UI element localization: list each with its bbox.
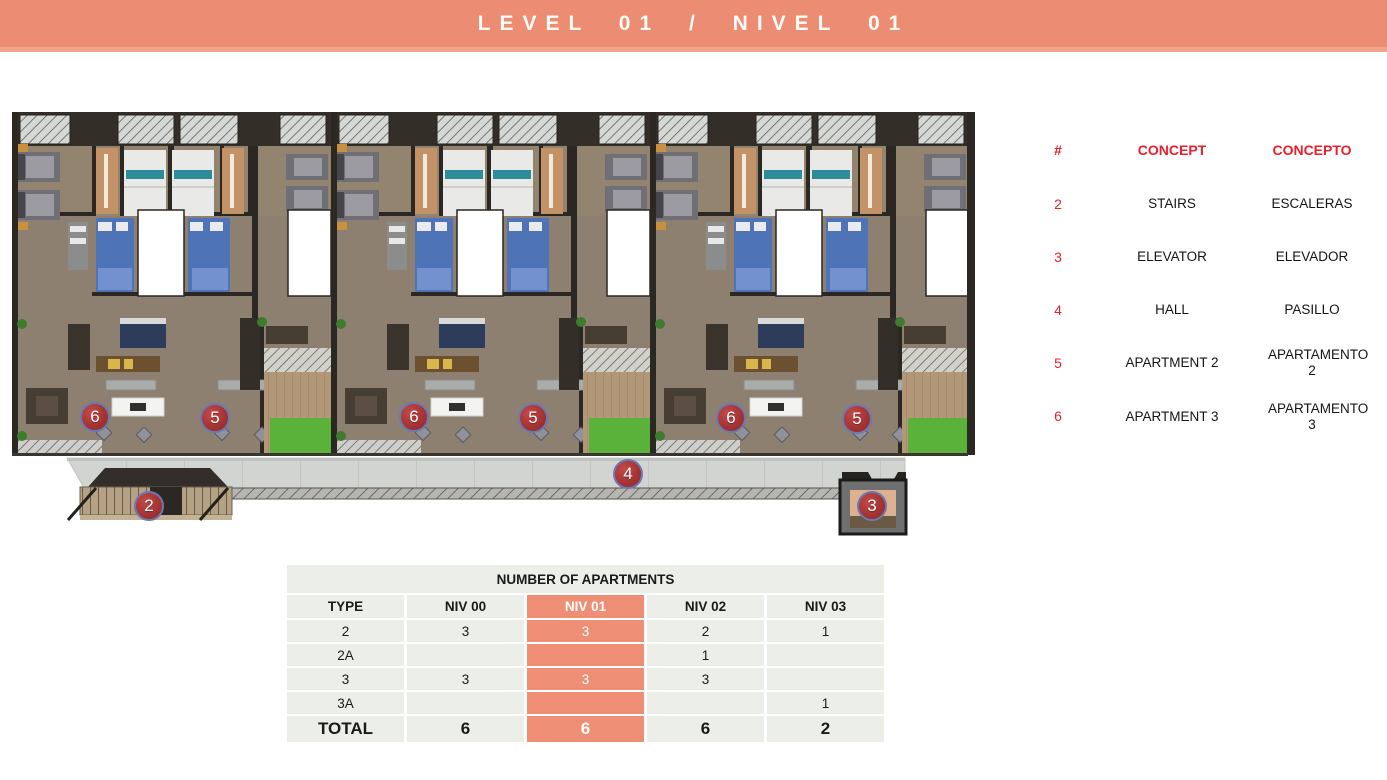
plan-marker-apartment2: 5 (200, 403, 230, 433)
cell-total-niv02: 6 (647, 716, 764, 742)
cell-niv02: 1 (647, 644, 764, 666)
cell-total-label: TOTAL (287, 716, 404, 742)
cell-total-niv01: 6 (527, 716, 644, 742)
cell-niv03 (767, 668, 884, 690)
legend-row-num: 6 (1040, 408, 1076, 425)
apartment-modules (12, 112, 969, 455)
cell-niv02 (647, 692, 764, 714)
plan-marker-apartment3: 6 (80, 402, 110, 432)
legend-row-concepto: ESCALERAS (1268, 196, 1356, 212)
plan-marker-apartment3: 6 (716, 403, 746, 433)
plan-marker-apartment2: 5 (518, 403, 548, 433)
legend-header-concepto: CONCEPTO (1268, 142, 1356, 159)
legend-header-concept: CONCEPT (1076, 142, 1268, 159)
cell-type: 2 (287, 620, 404, 642)
plan-marker-stairs: 2 (134, 491, 164, 521)
legend-row-num: 2 (1040, 196, 1076, 213)
legend-row-concept: HALL (1076, 302, 1268, 318)
page-title: LEVEL 01 / NIVEL 01 (478, 12, 910, 36)
cell-niv00 (407, 644, 524, 666)
cell-niv01: 3 (527, 668, 644, 690)
apartments-table-header-row: TYPE NIV 00 NIV 01 NIV 02 NIV 03 (287, 595, 884, 618)
cell-niv03: 1 (767, 692, 884, 714)
header-bar: LEVEL 01 / NIVEL 01 (0, 0, 1387, 52)
floor-plan: 6 5 6 5 6 5 4 2 3 (10, 110, 978, 538)
table-total-row: TOTAL 6 6 6 2 (287, 716, 884, 742)
cell-niv02: 3 (647, 668, 764, 690)
cell-total-niv00: 6 (407, 716, 524, 742)
cell-niv01: 3 (527, 620, 644, 642)
cell-niv01 (527, 692, 644, 714)
column-header-type: TYPE (287, 595, 404, 618)
table-row: 3 3 3 3 (287, 668, 884, 690)
table-row: 3A 1 (287, 692, 884, 714)
legend-row-num: 3 (1040, 249, 1076, 266)
column-header-niv03: NIV 03 (767, 595, 884, 618)
legend-row-concept: ELEVATOR (1076, 249, 1268, 265)
cell-niv00: 3 (407, 620, 524, 642)
cell-niv01 (527, 644, 644, 666)
legend-row-concepto: ELEVADOR (1268, 249, 1356, 265)
plan-marker-hall: 4 (613, 459, 643, 489)
apartments-table-title: NUMBER OF APARTMENTS (287, 565, 884, 593)
cell-type: 2A (287, 644, 404, 666)
cell-niv03: 1 (767, 620, 884, 642)
cell-niv03 (767, 644, 884, 666)
plan-marker-apartment2: 5 (842, 404, 872, 434)
legend-header-num: # (1040, 142, 1076, 159)
floor-plan-graphic (10, 110, 978, 538)
cell-type: 3 (287, 668, 404, 690)
legend-row-concepto: PASILLO (1268, 302, 1356, 318)
legend-row-concepto: APARTAMENTO 2 (1268, 347, 1356, 379)
legend-row-concepto: APARTAMENTO 3 (1268, 401, 1356, 433)
legend-row-num: 4 (1040, 302, 1076, 319)
plan-marker-apartment3: 6 (399, 402, 429, 432)
plan-marker-elevator: 3 (857, 491, 887, 521)
column-header-niv01: NIV 01 (527, 595, 644, 618)
column-header-niv02: NIV 02 (647, 595, 764, 618)
legend-row-concept: APARTMENT 3 (1076, 409, 1268, 425)
cell-niv00 (407, 692, 524, 714)
cell-total-niv03: 2 (767, 716, 884, 742)
legend: # CONCEPT CONCEPTO 2 STAIRS ESCALERAS 3 … (1040, 124, 1356, 443)
cell-type: 3A (287, 692, 404, 714)
table-row: 2 3 3 2 1 (287, 620, 884, 642)
legend-row-concept: APARTMENT 2 (1076, 355, 1268, 371)
apartments-table: NUMBER OF APARTMENTS TYPE NIV 00 NIV 01 … (287, 565, 884, 742)
legend-row-num: 5 (1040, 355, 1076, 372)
column-header-niv00: NIV 00 (407, 595, 524, 618)
legend-row-concept: STAIRS (1076, 196, 1268, 212)
cell-niv02: 2 (647, 620, 764, 642)
table-row: 2A 1 (287, 644, 884, 666)
cell-niv00: 3 (407, 668, 524, 690)
page: LEVEL 01 / NIVEL 01 (0, 0, 1387, 780)
